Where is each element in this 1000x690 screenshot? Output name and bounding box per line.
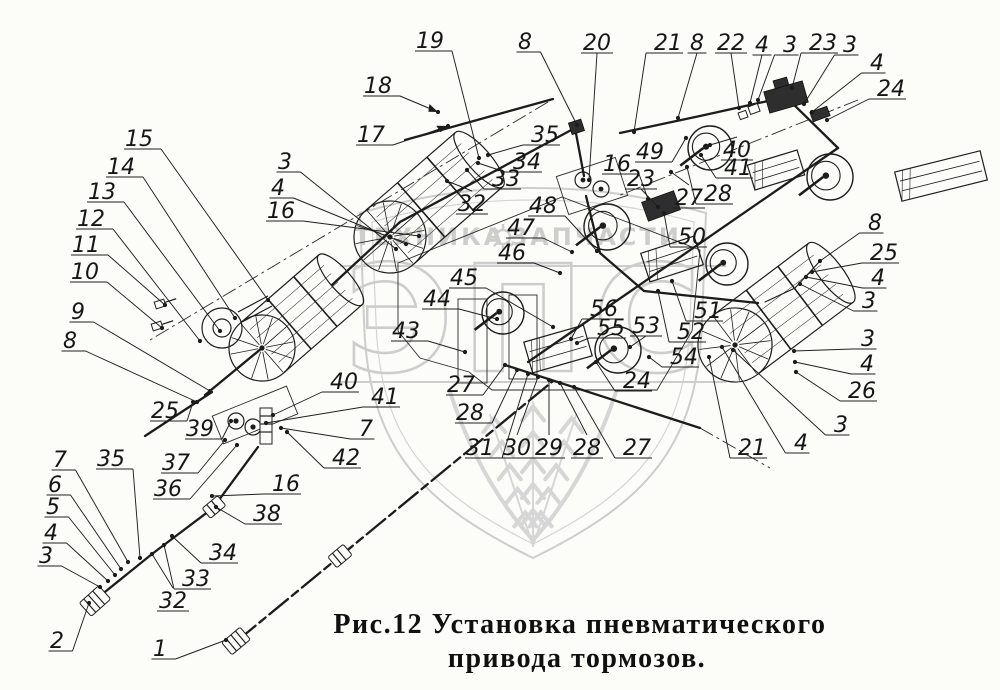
callout-label-44: 44 [423, 287, 451, 312]
callout-label-32: 32 [159, 589, 187, 614]
valve-top-right [762, 73, 809, 113]
callout-label-46: 46 [498, 241, 526, 266]
leader-line [634, 53, 646, 132]
callout-label-28: 28 [456, 401, 484, 426]
fitting-point [748, 101, 752, 105]
fitting-point [818, 259, 822, 263]
callout-label-4: 4 [871, 266, 885, 291]
callout-label-3: 3 [861, 327, 875, 352]
watermark-word-left: ТЕХНИКА [355, 223, 506, 251]
leader-line [172, 536, 201, 563]
fitting-point [463, 350, 467, 354]
leader-line [287, 432, 324, 468]
callout-label-19: 19 [416, 29, 444, 54]
fitting-point [587, 178, 591, 182]
fitting-point [113, 573, 117, 577]
leader-line [73, 603, 90, 651]
callout-label-50: 50 [678, 225, 706, 250]
leader-line [86, 351, 198, 402]
fitting-point [572, 385, 576, 389]
fitting-point [160, 326, 164, 330]
leader-line [678, 53, 697, 118]
callout-label-54: 54 [670, 345, 698, 370]
valve-cluster-left [228, 408, 272, 444]
leader-line [281, 428, 351, 439]
leader-line [161, 149, 268, 300]
fitting-point [150, 552, 154, 556]
callout-label-28: 28 [573, 436, 601, 461]
leader-arrowhead [428, 104, 438, 112]
fitting-point [569, 337, 573, 341]
callout-label-49: 49 [636, 140, 664, 165]
fitting-point [465, 168, 469, 172]
leader-line [671, 172, 689, 185]
callout-label-9: 9 [71, 300, 85, 325]
callout-label-3: 3 [843, 33, 857, 58]
diagram-canvas: ЭПС ТЕХНИКА ЗАПЧАСТИ [0, 0, 1000, 690]
callout-label-8: 8 [868, 211, 882, 236]
callout-label-8: 8 [518, 30, 532, 55]
fitting-point [558, 271, 562, 275]
fitting-point [628, 345, 632, 349]
fitting-point [126, 560, 130, 564]
callout-label-4: 4 [44, 521, 58, 546]
callout-label-53: 53 [632, 314, 660, 339]
callout-label-10: 10 [71, 260, 99, 285]
leader-line [198, 440, 225, 473]
callout-label-31: 31 [466, 436, 494, 461]
callout-label-51: 51 [694, 299, 722, 324]
fitting-point [798, 282, 802, 286]
fitting-point [271, 413, 275, 417]
callout-label-34: 34 [209, 541, 237, 566]
fitting-point [106, 579, 110, 583]
fitting-point [570, 250, 574, 254]
fitting-point [790, 86, 794, 90]
leader-line [176, 640, 227, 659]
leader-line [190, 445, 237, 499]
leader-line [67, 543, 109, 581]
ribbed-bracket-2 [895, 151, 988, 201]
fitting-point [526, 372, 530, 376]
callout-label-3: 3 [39, 544, 53, 569]
fitting-point [662, 211, 666, 215]
fitting-point [731, 348, 735, 352]
fitting-point [699, 153, 703, 157]
callout-label-2: 2 [50, 629, 64, 654]
brake-chamber-2 [799, 154, 853, 200]
leader-line [795, 362, 852, 374]
fitting-point [279, 426, 283, 430]
callout-label-15: 15 [125, 127, 153, 152]
callout-label-24: 24 [623, 369, 651, 394]
fitting-point [417, 234, 421, 238]
fitting-point [87, 601, 91, 605]
leader-line [709, 357, 730, 458]
fitting-point [264, 421, 268, 425]
figure-caption-line1: Рис.12 Установка пневматического [333, 609, 826, 640]
callout-label-38: 38 [253, 502, 281, 527]
leader-line [672, 138, 686, 162]
callout-label-13: 13 [88, 180, 116, 205]
fitting-point [214, 505, 218, 509]
leader-line [794, 349, 853, 351]
leader-line [216, 507, 245, 524]
callout-label-32: 32 [458, 192, 486, 217]
callout-label-41: 41 [371, 385, 399, 410]
ribbed-bracket-1 [747, 150, 804, 190]
leader-line [133, 469, 140, 558]
callout-label-27: 27 [675, 186, 703, 211]
callout-label-21: 21 [738, 436, 766, 461]
fitting-point [551, 325, 555, 329]
fitting-point [794, 370, 798, 374]
callout-label-3: 3 [783, 33, 797, 58]
callout-label-4: 4 [794, 431, 808, 456]
callout-label-12: 12 [77, 207, 105, 232]
leader-line [589, 53, 597, 180]
fitting-point [208, 389, 212, 393]
leader-line [62, 566, 101, 587]
fitting-point [707, 355, 711, 359]
fitting-point [223, 438, 227, 442]
fitting-point [676, 116, 680, 120]
callout-label-14: 14 [107, 155, 135, 180]
callout-label-45: 45 [450, 266, 478, 291]
fitting-point [163, 303, 167, 307]
leader-line [806, 277, 863, 288]
callout-label-3: 3 [278, 150, 292, 175]
fitting-point [198, 339, 202, 343]
callout-label-1: 1 [153, 637, 167, 662]
figure-caption-line2: привода тормозов. [448, 643, 706, 674]
fitting-point [547, 378, 551, 382]
callout-label-35: 35 [531, 123, 559, 148]
fitting-point [445, 179, 449, 183]
fitting-point [477, 156, 481, 160]
callout-label-18: 18 [364, 74, 392, 99]
leader-line [212, 494, 264, 496]
callout-label-30: 30 [503, 436, 531, 461]
leader-line [796, 372, 840, 401]
callout-label-29: 29 [535, 436, 563, 461]
fitting-point [575, 123, 579, 127]
fitting-point [536, 375, 540, 379]
fitting-point [558, 381, 562, 385]
callout-label-43: 43 [392, 319, 420, 344]
callout-label-27: 27 [447, 373, 475, 398]
fitting-point [285, 430, 289, 434]
callout-label-17: 17 [357, 123, 385, 148]
fitting-point [486, 153, 490, 157]
leader-line [273, 392, 322, 415]
callout-label-8: 8 [690, 31, 704, 56]
callout-label-41: 41 [724, 156, 752, 181]
callout-label-3: 3 [862, 289, 876, 314]
fitting-point [793, 360, 797, 364]
callout-label-8: 8 [63, 329, 77, 354]
callout-label-3: 3 [834, 413, 848, 438]
fitting-point [515, 368, 519, 372]
leader-line [820, 233, 860, 261]
callout-label-5: 5 [46, 495, 60, 520]
callout-label-20: 20 [583, 31, 611, 56]
tow-loop-bracket [202, 296, 272, 348]
callout-label-22: 22 [717, 31, 745, 56]
filter-cylinder [260, 408, 272, 444]
leader-line [731, 53, 739, 108]
leader-line [266, 407, 363, 423]
fitting-point [810, 270, 814, 274]
callout-label-7: 7 [53, 448, 67, 473]
callout-label-11: 11 [72, 233, 100, 258]
fitting-point [394, 247, 398, 251]
leader-line [541, 52, 578, 125]
leader-line [452, 51, 479, 158]
fitting-point [229, 419, 233, 423]
fitting-point [594, 360, 598, 364]
callout-label-24: 24 [877, 77, 905, 102]
callout-label-4: 4 [860, 352, 874, 377]
fitting-point [98, 585, 102, 589]
fitting-point [825, 118, 829, 122]
leader-line [108, 255, 165, 305]
fitting-point [802, 102, 806, 106]
leader-line [76, 470, 129, 562]
fitting-point [162, 543, 166, 547]
fitting-point [195, 400, 199, 404]
callout-label-40: 40 [330, 370, 358, 395]
fitting-point [670, 279, 674, 283]
callout-label-21: 21 [654, 31, 682, 56]
callout-label-28: 28 [704, 182, 732, 207]
leader-line [804, 55, 835, 104]
fitting-point [138, 556, 142, 560]
leader-line [750, 55, 762, 103]
fitting-point [684, 136, 688, 140]
fitting-point [233, 316, 237, 320]
fitting-point [119, 567, 123, 571]
leader-line [733, 350, 826, 435]
fitting-point [210, 494, 214, 498]
fitting-point [792, 349, 796, 353]
callout-label-33: 33 [492, 167, 520, 192]
callout-label-25: 25 [151, 399, 179, 424]
fitting-point [495, 317, 499, 321]
fitting-point [756, 98, 760, 102]
callout-label-23: 23 [627, 167, 655, 192]
fitting-point [685, 165, 689, 169]
callout-label-36: 36 [154, 477, 182, 502]
fitting-point [404, 242, 408, 246]
fitting-point [266, 298, 270, 302]
callout-label-4: 4 [755, 33, 769, 58]
callout-label-23: 23 [809, 31, 837, 56]
callout-label-16: 16 [272, 472, 300, 497]
fitting-point [575, 341, 579, 345]
callout-label-42: 42 [332, 446, 360, 471]
fitting-point [191, 400, 195, 404]
fitting-point [656, 205, 660, 209]
leader-line [143, 177, 235, 318]
fitting-point [476, 161, 480, 165]
fitting-point [708, 143, 712, 147]
leader-line [107, 282, 162, 328]
callout-label-35: 35 [97, 447, 125, 472]
leader-line [812, 263, 862, 272]
callout-label-16: 16 [267, 199, 295, 224]
callout-label-39: 39 [186, 417, 214, 442]
figure-page: ЭПС ТЕХНИКА ЗАПЧАСТИ [0, 0, 1000, 690]
fitting-point [632, 130, 636, 134]
fitting-point [235, 443, 239, 447]
fitting-point [669, 170, 673, 174]
fitting-point [720, 345, 724, 349]
fitting-point [647, 355, 651, 359]
callout-label-7: 7 [359, 417, 373, 442]
leader-line [222, 421, 231, 439]
fitting-point [595, 249, 599, 253]
callout-label-47: 47 [507, 216, 535, 241]
callout-label-55: 55 [597, 316, 625, 341]
callout-label-25: 25 [870, 241, 898, 266]
callout-label-37: 37 [162, 451, 190, 476]
callout-label-4: 4 [271, 176, 285, 201]
fitting-point [656, 289, 660, 293]
callout-label-27: 27 [623, 436, 651, 461]
fitting-point [170, 534, 174, 538]
fitting-point [224, 638, 228, 642]
leader-line [94, 322, 211, 391]
callout-label-26: 26 [848, 379, 876, 404]
fitting-point [218, 329, 222, 333]
callout-label-4: 4 [870, 51, 884, 76]
hex-nut [738, 110, 748, 119]
fitting-point [810, 110, 814, 114]
fitting-point [737, 106, 741, 110]
fitting-point [503, 363, 507, 367]
fitting-point [804, 275, 808, 279]
